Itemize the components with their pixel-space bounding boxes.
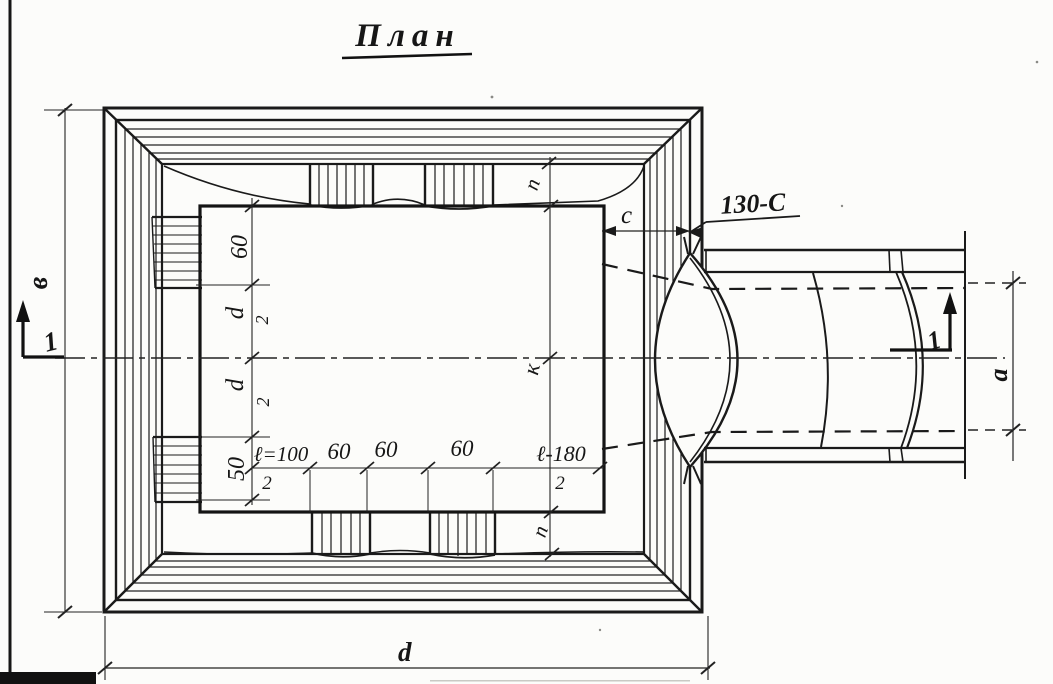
- dim-label-v50: 50: [224, 457, 250, 481]
- page-title: План: [354, 18, 460, 54]
- dim-label-h60b: 60: [375, 437, 399, 462]
- scan-artifact-bar: [0, 672, 96, 684]
- dim-label-h60a: 60: [328, 439, 352, 464]
- dim-label-c: с: [621, 202, 632, 229]
- dim-label-d2a-den: 2: [252, 316, 272, 325]
- dim-label-v60: 60: [227, 235, 253, 259]
- dim-label-l100-num: ℓ=100: [254, 442, 309, 466]
- paper-background: [0, 0, 1053, 684]
- dim-label-h60c: 60: [451, 436, 475, 461]
- dim-label-l180-den: 2: [555, 473, 565, 494]
- dim-label-l100-den: 2: [262, 473, 272, 494]
- callout-label: 130-C: [720, 187, 787, 219]
- scanned-plan-sheet: План в 1 1 d a 60 d 2 d 2 50 ℓ=100 2 60 …: [0, 0, 1053, 684]
- dim-label-d2b-num: d: [222, 378, 249, 391]
- dim-label-overall-height: в: [23, 276, 54, 289]
- dim-label-l180-num: ℓ-180: [536, 441, 586, 466]
- dim-label-pipe-bore: a: [984, 369, 1013, 382]
- dim-label-d2a-num: d: [222, 306, 249, 319]
- plan-drawing: План в 1 1 d a 60 d 2 d 2 50 ℓ=100 2 60 …: [0, 0, 1053, 684]
- dim-label-d2b-den: 2: [253, 398, 273, 407]
- dim-label-overall-width: d: [398, 637, 412, 667]
